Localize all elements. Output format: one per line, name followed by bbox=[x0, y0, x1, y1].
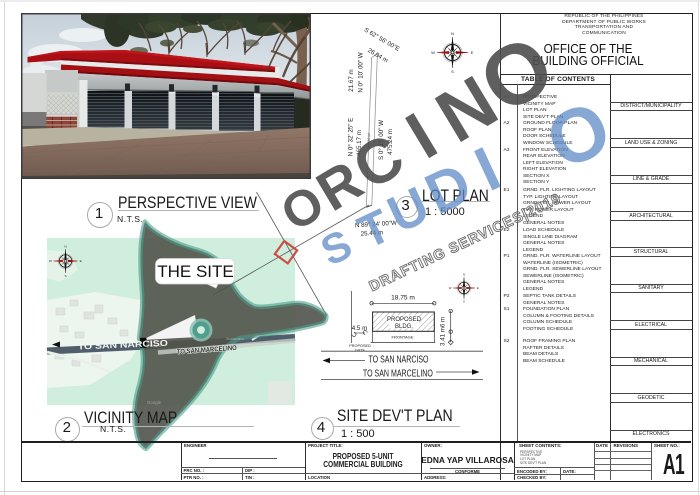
svg-text:S: S bbox=[314, 220, 359, 274]
